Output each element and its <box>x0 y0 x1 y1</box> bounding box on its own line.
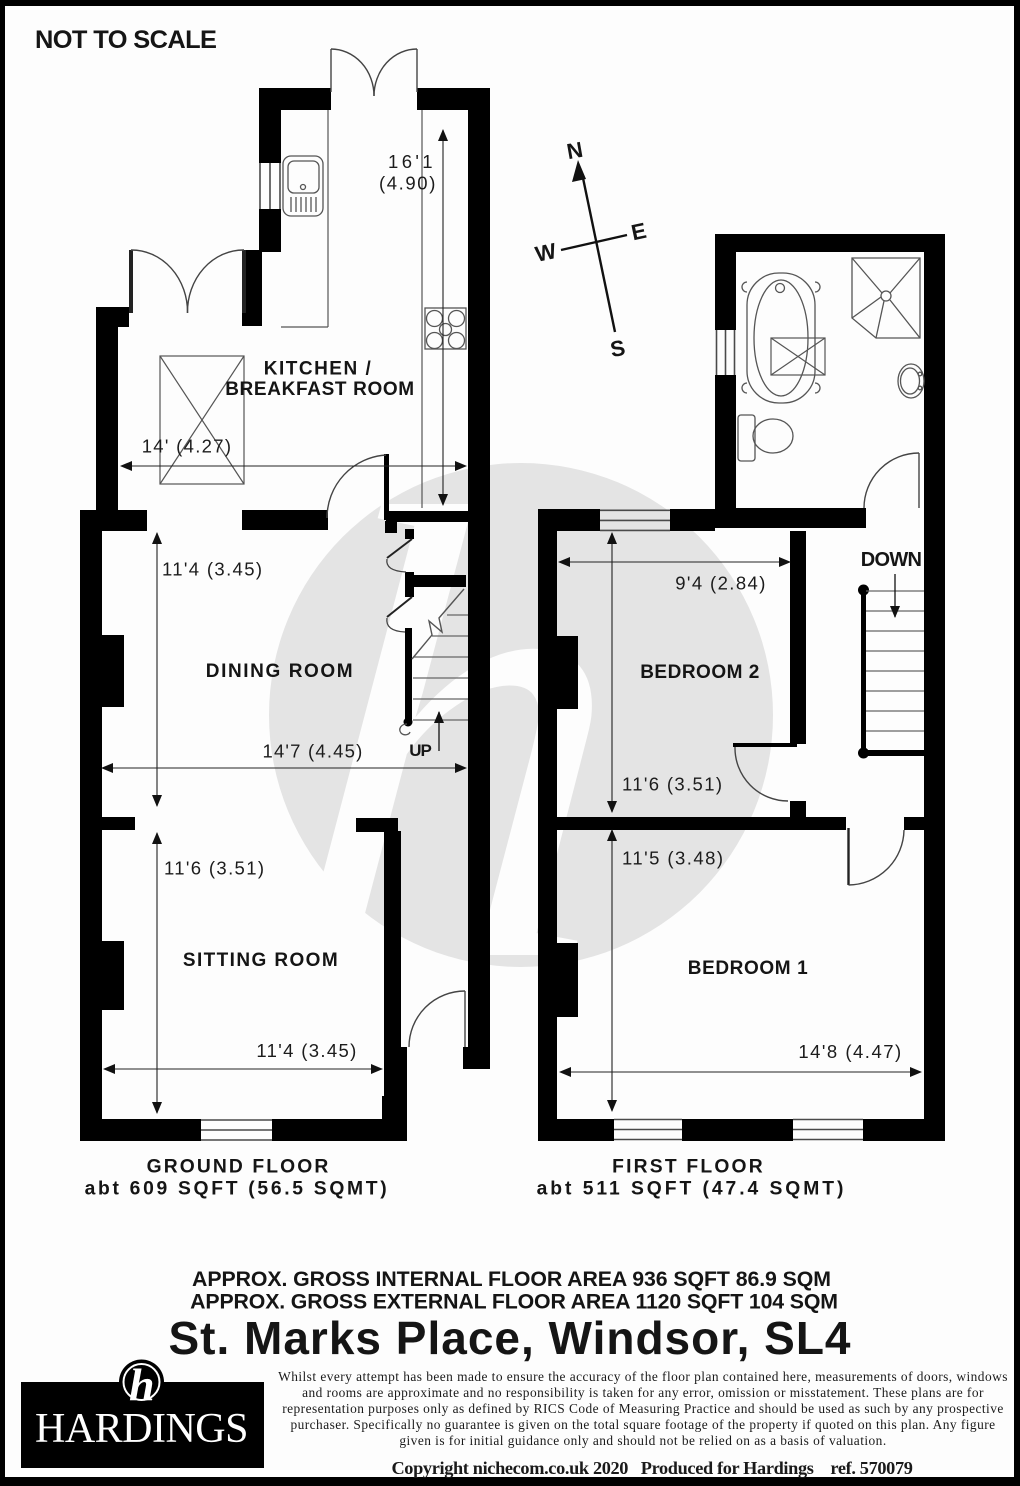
svg-text:16'1: 16'1 <box>388 151 436 172</box>
svg-text:APPROX. GROSS EXTERNAL FLOOR A: APPROX. GROSS EXTERNAL FLOOR AREA 1120 S… <box>190 1290 838 1314</box>
svg-text:DINING ROOM: DINING ROOM <box>206 661 355 682</box>
svg-text:KITCHEN /: KITCHEN / <box>264 359 373 380</box>
svg-text:St. Marks Place, Windsor, SL4: St. Marks Place, Windsor, SL4 <box>168 1312 851 1364</box>
svg-text:DOWN: DOWN <box>861 549 922 571</box>
svg-text:BREAKFAST ROOM: BREAKFAST ROOM <box>225 379 415 400</box>
svg-text:given is for initial guidance: given is for initial guidance only and s… <box>399 1433 886 1448</box>
svg-text:11'4 (3.45): 11'4 (3.45) <box>256 1040 357 1061</box>
svg-text:h: h <box>129 1359 155 1410</box>
svg-text:14' (4.27): 14' (4.27) <box>142 436 233 457</box>
svg-text:11'6 (3.51): 11'6 (3.51) <box>164 858 265 879</box>
svg-text:abt 511 SQFT (47.4 SQMT): abt 511 SQFT (47.4 SQMT) <box>537 1179 847 1200</box>
svg-text:Whilst every attempt has been: Whilst every attempt has been made to en… <box>278 1369 1008 1384</box>
svg-text:and rooms are approximate and: and rooms are approximate and no respons… <box>302 1385 984 1400</box>
svg-text:14'8 (4.47): 14'8 (4.47) <box>798 1041 902 1062</box>
svg-text:11'4 (3.45): 11'4 (3.45) <box>162 559 263 580</box>
svg-text:Copyright nichecom.co.uk 2020: Copyright nichecom.co.uk 2020 Produced f… <box>391 1458 912 1478</box>
svg-text:(4.90): (4.90) <box>379 173 437 194</box>
svg-text:BEDROOM 2: BEDROOM 2 <box>640 662 760 683</box>
svg-text:SITTING ROOM: SITTING ROOM <box>183 950 339 971</box>
svg-text:BEDROOM 1: BEDROOM 1 <box>688 958 808 979</box>
svg-text:11'5 (3.48): 11'5 (3.48) <box>622 848 724 869</box>
svg-text:NOT TO SCALE: NOT TO SCALE <box>35 26 216 54</box>
svg-text:representation purposes only a: representation purposes only as defined … <box>282 1401 1004 1416</box>
svg-text:11'6 (3.51): 11'6 (3.51) <box>622 774 723 795</box>
svg-text:14'7 (4.45): 14'7 (4.45) <box>262 741 363 762</box>
svg-text:abt 609 SQFT (56.5 SQMT): abt 609 SQFT (56.5 SQMT) <box>85 1179 390 1200</box>
svg-text:FIRST FLOOR: FIRST FLOOR <box>612 1157 765 1178</box>
svg-text:UP: UP <box>409 741 431 760</box>
svg-text:h: h <box>266 376 654 1096</box>
svg-text:HARDINGS: HARDINGS <box>35 1406 248 1452</box>
svg-text:APPROX. GROSS INTERNAL FLOOR A: APPROX. GROSS INTERNAL FLOOR AREA 936 SQ… <box>192 1267 831 1291</box>
svg-text:purchaser. Specifically no gu: purchaser. Specifically no guarantee is … <box>290 1417 995 1432</box>
svg-text:GROUND FLOOR: GROUND FLOOR <box>147 1157 331 1178</box>
svg-text:9'4 (2.84): 9'4 (2.84) <box>675 573 767 594</box>
